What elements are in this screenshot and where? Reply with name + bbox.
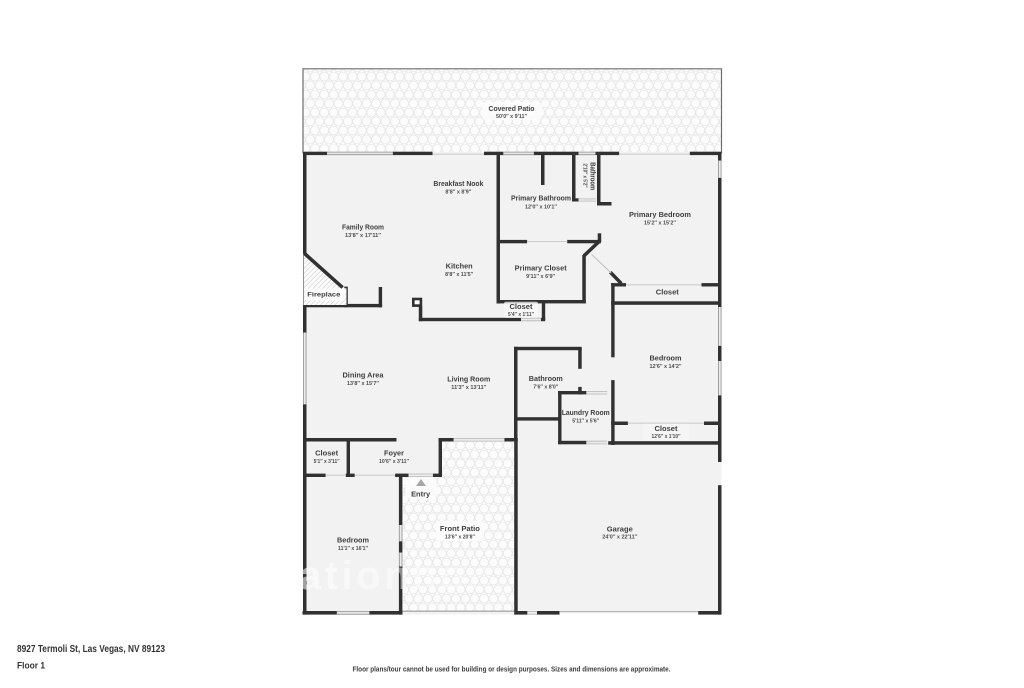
svg-text:Bathroom: Bathroom [589, 162, 598, 190]
svg-text:Breakfast Nook: Breakfast Nook [433, 179, 483, 188]
svg-text:Front Patio: Front Patio [440, 524, 481, 533]
svg-text:8′8″ x 8′9″: 8′8″ x 8′9″ [445, 189, 472, 195]
svg-text:7′6″ x 8′0″: 7′6″ x 8′0″ [533, 384, 559, 390]
svg-text:Primary Bathroom: Primary Bathroom [511, 194, 571, 203]
svg-text:Entry: Entry [411, 490, 430, 499]
svg-text:5′11″ x 5′6″: 5′11″ x 5′6″ [572, 419, 599, 425]
svg-text:11′1″ x 16′1″: 11′1″ x 16′1″ [338, 546, 369, 552]
svg-text:5′1″ x 3′11″: 5′1″ x 3′11″ [314, 459, 340, 465]
svg-text:Living Room: Living Room [447, 375, 490, 384]
svg-text:Closet: Closet [655, 424, 679, 433]
svg-text:Covered Patio: Covered Patio [489, 104, 536, 113]
svg-text:12′0″ x 10′1″: 12′0″ x 10′1″ [525, 204, 558, 210]
svg-text:13′8″ x 15′7″: 13′8″ x 15′7″ [347, 381, 380, 387]
svg-text:Kitchen: Kitchen [446, 262, 473, 271]
svg-text:Garage: Garage [607, 524, 633, 533]
svg-text:Floor plans/tour cannot be use: Floor plans/tour cannot be used for buil… [353, 664, 671, 673]
svg-text:Dining Area: Dining Area [343, 370, 385, 379]
svg-text:Family Room: Family Room [342, 223, 384, 232]
svg-text:Bathroom: Bathroom [529, 374, 563, 383]
svg-text:12′6″ x 1′10″: 12′6″ x 1′10″ [652, 434, 681, 440]
svg-text:8′8″ x 11′5″: 8′8″ x 11′5″ [445, 272, 474, 278]
svg-text:Closet: Closet [656, 287, 680, 296]
svg-text:10′6″ x 3′11″: 10′6″ x 3′11″ [379, 459, 410, 465]
svg-text:8927 Termoli St, Las Vegas, NV: 8927 Termoli St, Las Vegas, NV 89123 [17, 644, 165, 655]
svg-text:15′2″ x 15′2″: 15′2″ x 15′2″ [644, 220, 677, 226]
svg-text:50′0″ x 9′11″: 50′0″ x 9′11″ [496, 114, 528, 120]
svg-text:Floor 1: Floor 1 [17, 660, 46, 671]
svg-text:Laundry Room: Laundry Room [562, 408, 610, 417]
svg-text:5′4″ x 1′11″: 5′4″ x 1′11″ [508, 312, 534, 318]
svg-text:12′6″ x 14′2″: 12′6″ x 14′2″ [650, 364, 683, 370]
svg-text:ationhomes: ationhomes [299, 554, 558, 598]
svg-text:Bedroom: Bedroom [650, 354, 682, 363]
svg-text:Primary Closet: Primary Closet [515, 264, 568, 273]
svg-text:9′11″ x 6′9″: 9′11″ x 6′9″ [526, 274, 556, 280]
svg-text:13′6″ x 20′8″: 13′6″ x 20′8″ [445, 534, 475, 540]
svg-text:Closet: Closet [510, 302, 534, 311]
svg-text:Bedroom: Bedroom [337, 536, 369, 545]
svg-text:13′8″ x 17′11″: 13′8″ x 17′11″ [345, 233, 382, 239]
svg-text:Primary Bedroom: Primary Bedroom [629, 210, 691, 219]
svg-text:24′0″ x 22′11″: 24′0″ x 22′11″ [602, 535, 638, 541]
svg-text:11′3″ x 13′11″: 11′3″ x 13′11″ [451, 385, 487, 391]
svg-text:Foyer: Foyer [384, 449, 404, 458]
svg-text:Closet: Closet [315, 449, 339, 458]
svg-text:2′10″ x 5′2″: 2′10″ x 5′2″ [582, 164, 588, 188]
svg-text:Fireplace: Fireplace [307, 291, 340, 298]
